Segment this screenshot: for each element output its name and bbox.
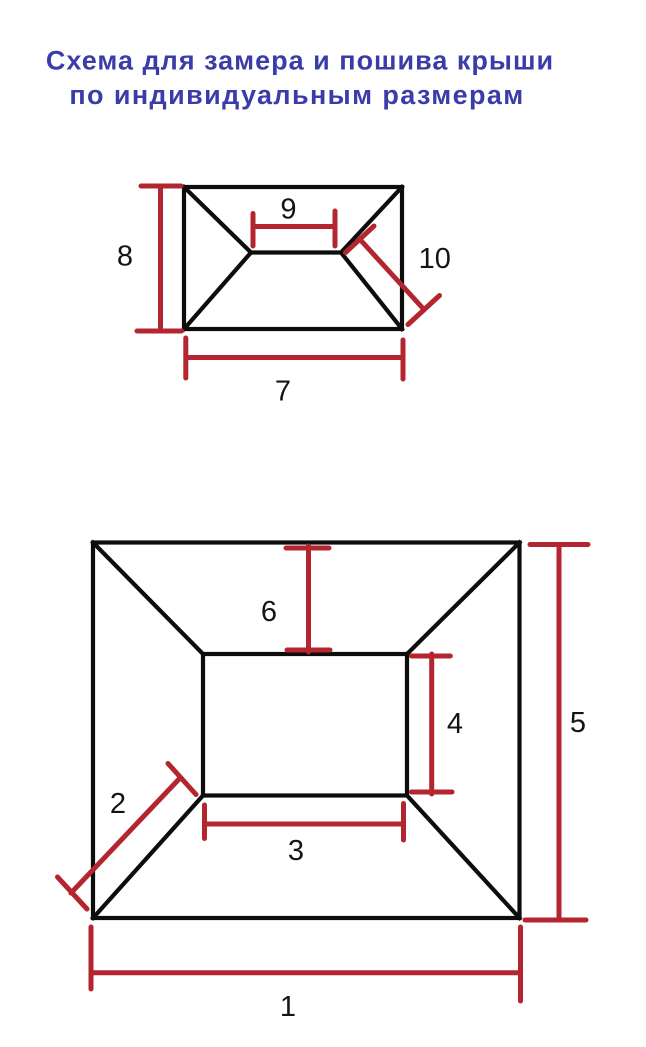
svg-text:5: 5 <box>570 707 586 739</box>
svg-text:по индивидуальным размерам: по индивидуальным размерам <box>69 80 524 110</box>
svg-text:3: 3 <box>288 835 304 867</box>
svg-text:8: 8 <box>117 241 133 273</box>
svg-text:10: 10 <box>419 243 451 275</box>
svg-text:7: 7 <box>275 376 291 408</box>
svg-text:Схема для замера и пошива крыш: Схема для замера и пошива крыши <box>46 46 554 76</box>
svg-text:9: 9 <box>280 194 296 226</box>
svg-text:1: 1 <box>280 991 296 1023</box>
svg-text:6: 6 <box>261 596 277 628</box>
svg-text:2: 2 <box>110 788 126 820</box>
svg-text:4: 4 <box>447 708 463 740</box>
